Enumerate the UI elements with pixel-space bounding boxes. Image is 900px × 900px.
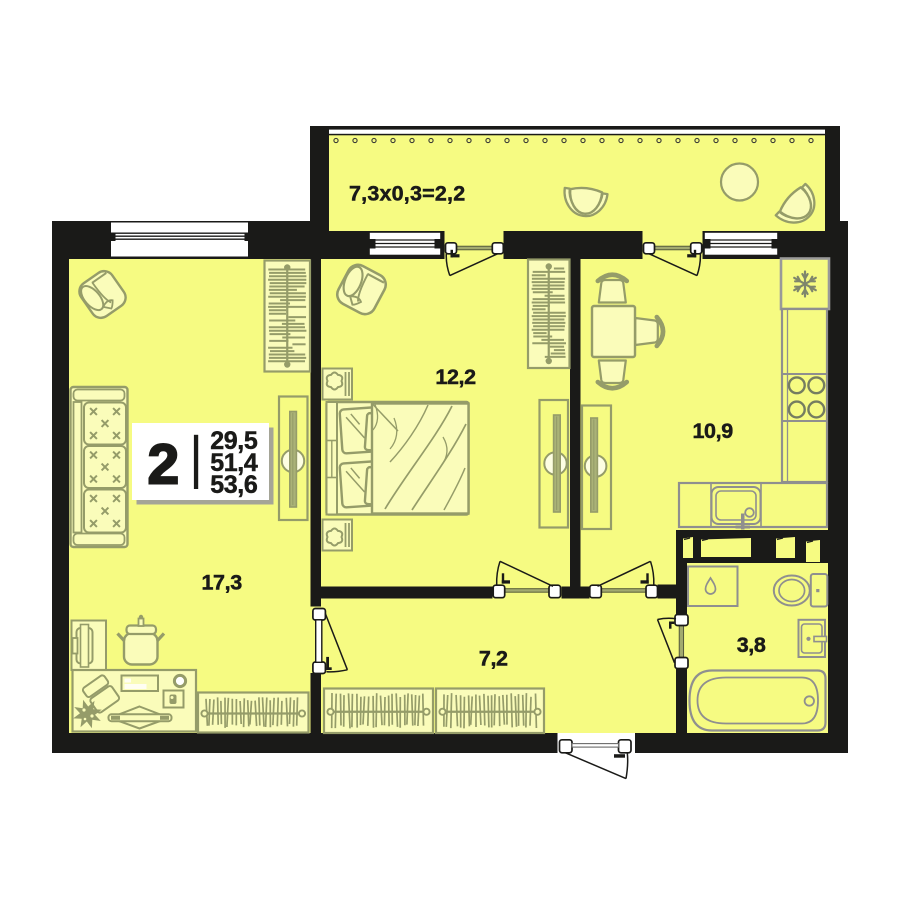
svg-text:53,6: 53,6 <box>210 471 257 499</box>
svg-text:7,3x0,3=2,2: 7,3x0,3=2,2 <box>349 182 465 206</box>
svg-text:12,2: 12,2 <box>435 365 476 389</box>
svg-text:3,8: 3,8 <box>737 633 766 657</box>
svg-text:10,9: 10,9 <box>693 419 734 443</box>
svg-text:7,2: 7,2 <box>479 647 508 671</box>
svg-text:17,3: 17,3 <box>202 571 243 595</box>
svg-text:2: 2 <box>148 432 180 496</box>
